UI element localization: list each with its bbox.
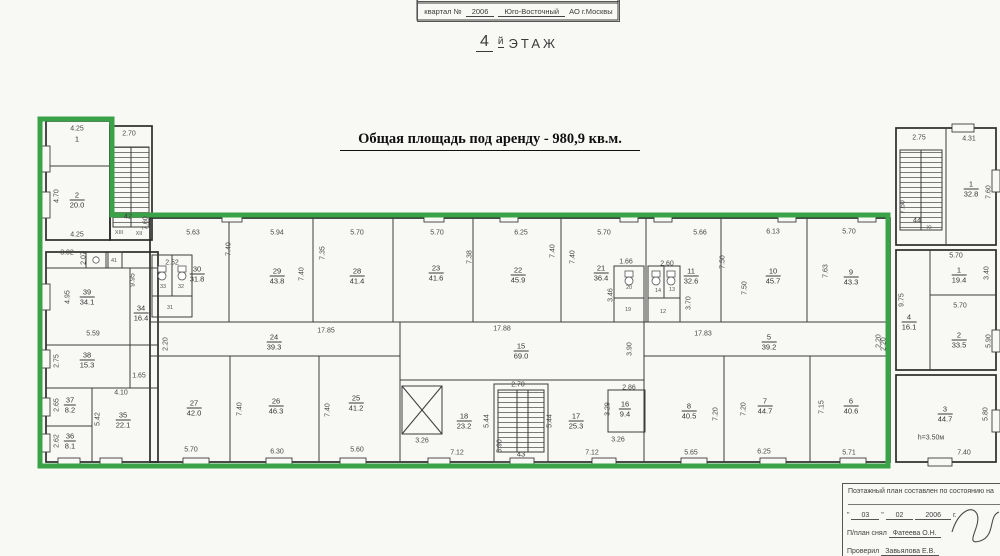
dimension-label: 7.60 <box>986 185 993 199</box>
dimension-label: 5.42 <box>95 412 102 426</box>
form-date-day: 03 <box>851 512 879 520</box>
dimension-label: 5.90 <box>497 439 504 453</box>
dimension-label: 5.70 <box>350 230 364 237</box>
dimension-label: 5.94 <box>270 230 284 237</box>
dimension-label: 9.75 <box>899 293 906 307</box>
checker-label: Проверил <box>847 548 879 555</box>
dimension-label: 5.60 <box>350 447 364 454</box>
dimension-label: 4.25 <box>70 232 84 239</box>
room-label: 132.8 <box>964 180 979 199</box>
room-label: 378.2 <box>64 396 76 415</box>
dimension-label: 5.70 <box>430 230 444 237</box>
dimension-label: 7.40 <box>570 250 577 264</box>
small-label: 33 <box>160 284 166 290</box>
dimension-label: 6.13 <box>766 229 780 236</box>
room-label: 840.5 <box>682 402 697 421</box>
quote-mark: " <box>881 512 884 519</box>
dimension-label: 2.70 <box>122 131 136 138</box>
dimension-label: 7.63 <box>823 264 830 278</box>
surveyor-label: П/план снял <box>847 530 887 537</box>
dimension-label: 2.20 <box>876 334 883 348</box>
dimension-label: 2.70 <box>511 382 525 389</box>
room-label: 1132.6 <box>684 267 699 286</box>
dimension-label: 17.83 <box>694 331 712 338</box>
dimension-label: 3.70 <box>686 296 693 310</box>
dimension-label: 2.62 <box>54 434 61 448</box>
small-label: 32 <box>178 284 184 290</box>
dimension-label: 5.66 <box>693 230 707 237</box>
room-label: 119.4 <box>952 266 967 285</box>
dimension-label: 1.66 <box>619 259 633 266</box>
small-label: XI <box>926 225 931 231</box>
room-label: 744.7 <box>758 397 773 416</box>
small-label: 14 <box>655 288 661 294</box>
dimension-label: 2.86 <box>622 385 636 392</box>
dimension-label: 5.65 <box>684 450 698 457</box>
room-label: 2943.8 <box>270 267 285 286</box>
small-label: 20 <box>626 285 632 291</box>
room-label: 1045.7 <box>766 267 781 286</box>
dimension-label: 7.12 <box>585 450 599 457</box>
floor-plan-page: квартал № 2006 Юго-Восточный АО г.Москвы… <box>0 0 1000 556</box>
dimension-label: 7.40 <box>325 403 332 417</box>
form-checker-row: Проверил Завьялова Е.В. <box>847 548 939 556</box>
room-label: 3031.8 <box>190 265 205 284</box>
dimension-label: 7.20 <box>713 407 720 421</box>
dimension-label: 2.60 <box>660 261 674 268</box>
dimension-label: 5.63 <box>186 230 200 237</box>
form-date-row: " 03 " 02 2006 г. <box>847 512 957 520</box>
room-label: 2646.3 <box>269 397 284 416</box>
room-label: 943.3 <box>844 268 859 287</box>
room-label: 2136.4 <box>594 264 609 283</box>
form-date-month: 02 <box>886 512 914 520</box>
dimension-label: 7.60 <box>900 200 907 214</box>
dimension-label: 5.70 <box>953 303 967 310</box>
dimension-label: 7.15 <box>819 400 826 414</box>
dimension-label: 5.70 <box>597 230 611 237</box>
dimension-label: 5.70 <box>842 229 856 236</box>
room-label: 2742.0 <box>187 399 202 418</box>
label-layer: 1220.03934.13416.43815.3378.2368.13522.1… <box>0 0 1000 556</box>
room-label: 1 <box>73 135 81 144</box>
dimension-label: 5.44 <box>484 414 491 428</box>
room-label: 220.0 <box>70 191 85 210</box>
dimension-label: 3.29 <box>605 402 612 416</box>
form-statement: Поэтажный план составлен по состоянию на <box>848 488 1000 505</box>
room-label: 2245.9 <box>511 266 526 285</box>
room-label: 539.2 <box>762 333 777 352</box>
small-label: 13 <box>669 287 675 293</box>
room-label: 3416.4 <box>134 304 149 323</box>
survey-form: Поэтажный план составлен по состоянию на… <box>842 483 1000 556</box>
dimension-label: 7.40 <box>299 267 306 281</box>
dimension-label: 7.50 <box>742 281 749 295</box>
room-label: 416.1 <box>902 313 917 332</box>
dimension-label: 5.70 <box>184 447 198 454</box>
dimension-label: 2.75 <box>912 135 926 142</box>
dimension-label: 5.80 <box>983 407 990 421</box>
dimension-label: 3.26 <box>611 437 625 444</box>
dimension-label: 5.71 <box>842 450 856 457</box>
dimension-label: 6.30 <box>270 449 284 456</box>
dimension-label: 5.44 <box>547 414 554 428</box>
dimension-label: 7.40 <box>957 450 971 457</box>
small-label: XIII <box>115 230 123 236</box>
dimension-label: 4.10 <box>114 390 128 397</box>
room-label: 344.7 <box>938 405 953 424</box>
room-label: 233.5 <box>952 331 967 350</box>
dimension-label: 7.38 <box>467 250 474 264</box>
stair-label: 42 <box>124 212 132 221</box>
dimension-label: 3.46 <box>608 288 615 302</box>
dimension-label: 7.60 <box>143 216 150 230</box>
dimension-label: 2.52 <box>165 260 179 267</box>
stair-label: 43 <box>517 450 525 459</box>
small-label: XII <box>136 231 143 237</box>
dimension-label: 7.50 <box>720 255 727 269</box>
room-label: 2841.4 <box>350 267 365 286</box>
small-label: 41 <box>111 258 117 264</box>
dimension-label: 2.75 <box>54 354 61 368</box>
checker-name: Завьялова Е.В. <box>881 548 939 556</box>
room-label: 1569.0 <box>514 342 529 361</box>
dimension-label: 7.40 <box>550 244 557 258</box>
dimension-label: 3.02 <box>60 250 74 257</box>
dimension-label: 17.88 <box>493 326 511 333</box>
dimension-label: 4.70 <box>54 189 61 203</box>
dimension-label: 9.95 <box>130 273 137 287</box>
dimension-label: 2.20 <box>163 337 170 351</box>
room-label: 3934.1 <box>80 288 95 307</box>
dimension-label: 7.20 <box>741 402 748 416</box>
dimension-label: 4.31 <box>962 136 976 143</box>
room-label: 640.6 <box>844 397 859 416</box>
stair-label: 44 <box>913 216 921 225</box>
form-surveyor-row: П/план снял Фатеева О.Н. <box>847 530 941 538</box>
dimension-label: 4.95 <box>65 290 72 304</box>
dimension-label: 7.12 <box>450 450 464 457</box>
room-label: 368.1 <box>64 432 76 451</box>
dimension-label: 5.59 <box>86 331 100 338</box>
room-label: 3815.3 <box>80 351 95 370</box>
dimension-label: 7.35 <box>320 246 327 260</box>
room-label: 1823.2 <box>457 412 472 431</box>
dimension-label: 3.26 <box>415 438 429 445</box>
dimension-label: 6.25 <box>757 449 771 456</box>
dimension-label: 5.90 <box>986 334 993 348</box>
form-year-suffix: г. <box>953 512 957 519</box>
dimension-label: 2.07 <box>81 251 88 265</box>
dimension-label: 2.65 <box>54 398 61 412</box>
dimension-label: 5.70 <box>949 253 963 260</box>
dimension-label: 1.65 <box>132 373 146 380</box>
room-label: 2439.3 <box>267 333 282 352</box>
room-label: 2341.6 <box>429 264 444 283</box>
dimension-label: 3.90 <box>627 342 634 356</box>
dimension-label: 7.40 <box>237 402 244 416</box>
room-label: 1725.3 <box>569 412 584 431</box>
dimension-label: 17.85 <box>317 328 335 335</box>
quote-mark: " <box>847 512 850 519</box>
small-label: 31 <box>167 305 173 311</box>
small-label: 12 <box>660 309 666 315</box>
room-label: 169.4 <box>619 400 631 419</box>
surveyor-name: Фатеева О.Н. <box>889 530 941 538</box>
room-label: 3522.1 <box>116 411 131 430</box>
form-date-year: 2006 <box>915 512 951 520</box>
small-label: 19 <box>625 307 631 313</box>
dimension-label: h=3.50м <box>918 435 944 442</box>
room-label: 2541.2 <box>349 394 364 413</box>
dimension-label: 6.25 <box>514 230 528 237</box>
dimension-label: 7.40 <box>226 242 233 256</box>
dimension-label: 4.25 <box>70 126 84 133</box>
dimension-label: 3.40 <box>984 266 991 280</box>
